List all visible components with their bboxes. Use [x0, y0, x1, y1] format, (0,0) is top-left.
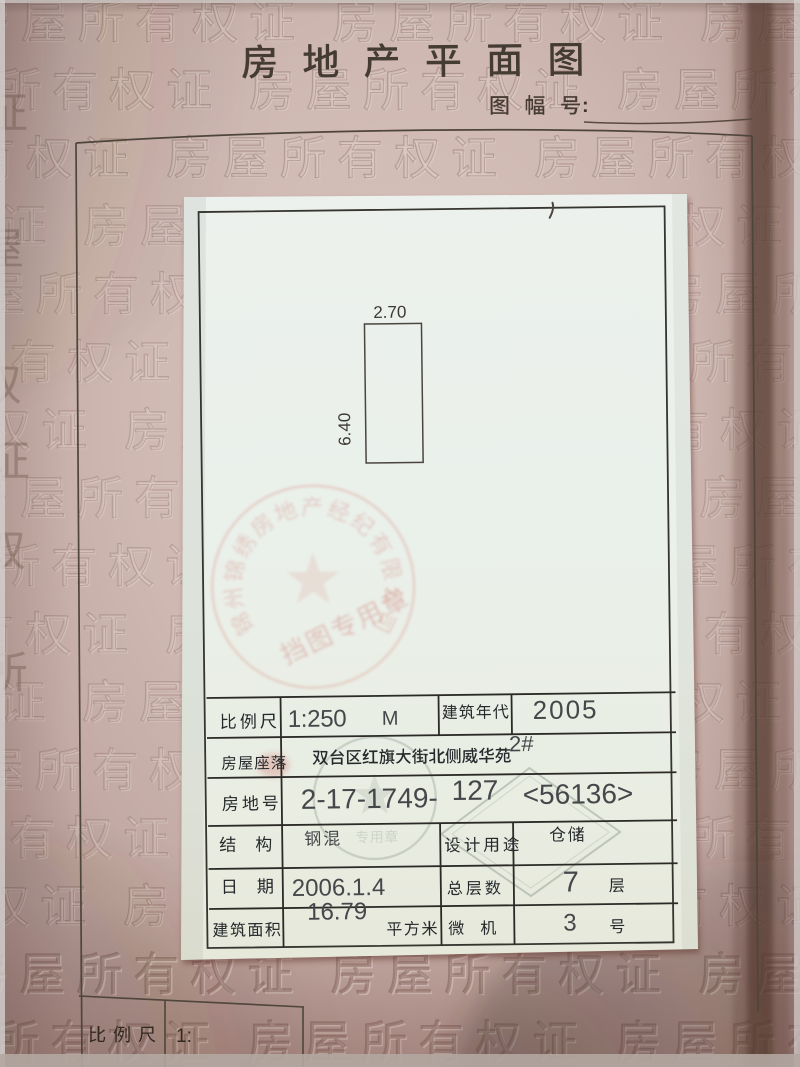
- svg-text:2-17-1749-: 2-17-1749-: [301, 782, 438, 815]
- svg-text:16.79: 16.79: [307, 898, 367, 926]
- svg-text:1:: 1:: [176, 1026, 192, 1047]
- svg-text:2005: 2005: [532, 694, 598, 725]
- svg-text:M: M: [382, 708, 399, 730]
- svg-text:1:250: 1:250: [288, 705, 347, 733]
- svg-text:6.40: 6.40: [335, 413, 354, 446]
- svg-text:2.70: 2.70: [373, 303, 406, 322]
- svg-text:127: 127: [451, 774, 498, 806]
- svg-text:3: 3: [563, 910, 577, 937]
- svg-text:7: 7: [563, 866, 580, 898]
- svg-text::: :: [582, 95, 589, 117]
- svg-text:2#: 2#: [509, 731, 535, 756]
- svg-text:<56136>: <56136>: [523, 778, 634, 810]
